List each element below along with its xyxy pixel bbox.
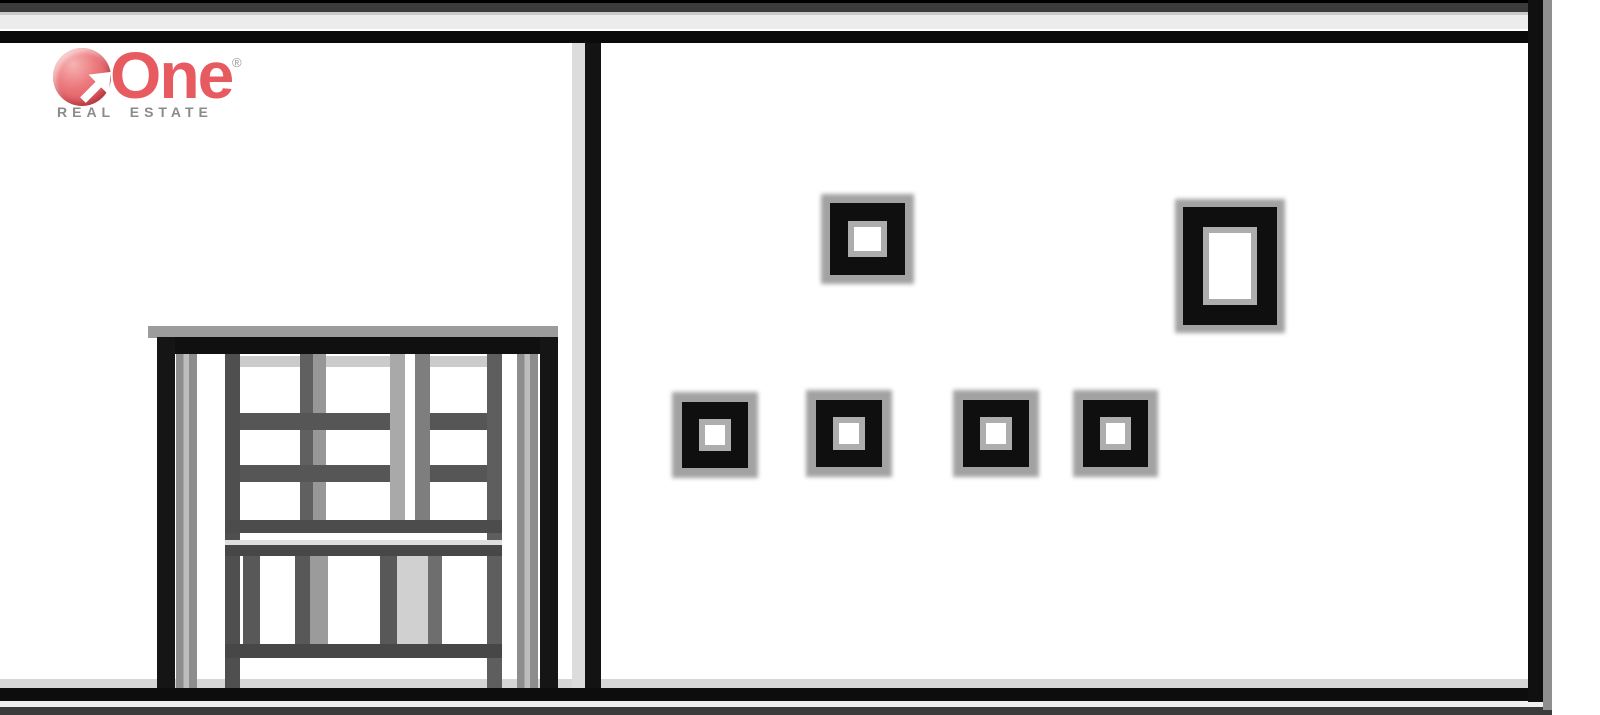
door-grid-bottom-rail (225, 520, 502, 533)
registered-trademark-icon: ® (232, 55, 242, 70)
door-jamb-left-gray (176, 354, 197, 688)
window-lower-2 (816, 400, 882, 467)
building-right-edge (1528, 0, 1543, 702)
door-jamb-right-black (540, 337, 558, 688)
roof-band-light-gray (0, 15, 1529, 29)
logo-brand-text: One (110, 42, 232, 108)
door-muntin-bar-1 (240, 413, 487, 430)
window-upper-right (1183, 207, 1277, 325)
door-mullion-2b (415, 354, 430, 532)
logo-tagline-text: REAL ESTATE (57, 104, 213, 120)
door-jamb-left-black (157, 337, 175, 688)
door-lower-panel-top-rail (225, 545, 502, 556)
elevation-drawing: One ® REAL ESTATE (0, 0, 1600, 715)
door-mullion-1a (300, 354, 313, 532)
one-real-estate-logo: One ® REAL ESTATE (40, 40, 270, 130)
door-mullion-1b (313, 354, 326, 532)
ground-band-dark (0, 707, 1552, 715)
door-lintel (157, 337, 558, 354)
door-mullion-2a (390, 354, 405, 532)
door-top-rail (240, 356, 487, 367)
door-mullion-gap (405, 354, 415, 532)
ground-band-black (0, 688, 1545, 701)
building-right-edge-shadow (1543, 0, 1552, 710)
window-lower-4 (1083, 400, 1148, 467)
window-lower-1 (682, 402, 748, 468)
door-muntin-bar-2 (240, 465, 487, 482)
door-slat-1 (243, 556, 260, 644)
window-upper-left (830, 203, 905, 275)
door-slat-5 (397, 556, 428, 644)
door-jamb-right-gray (517, 354, 538, 688)
door-lower-panel-bottom-rail (225, 644, 502, 658)
door-slat-2 (295, 556, 310, 644)
door-slat-3 (310, 556, 328, 644)
window-lower-3 (963, 400, 1029, 467)
wall-corner-highlight (572, 43, 585, 688)
roof-band-dark-gray (0, 3, 1552, 12)
door-slat-6 (428, 556, 442, 644)
logo-globe-icon (53, 48, 111, 106)
wall-corner-line (585, 43, 601, 688)
door-slat-4 (380, 556, 397, 644)
